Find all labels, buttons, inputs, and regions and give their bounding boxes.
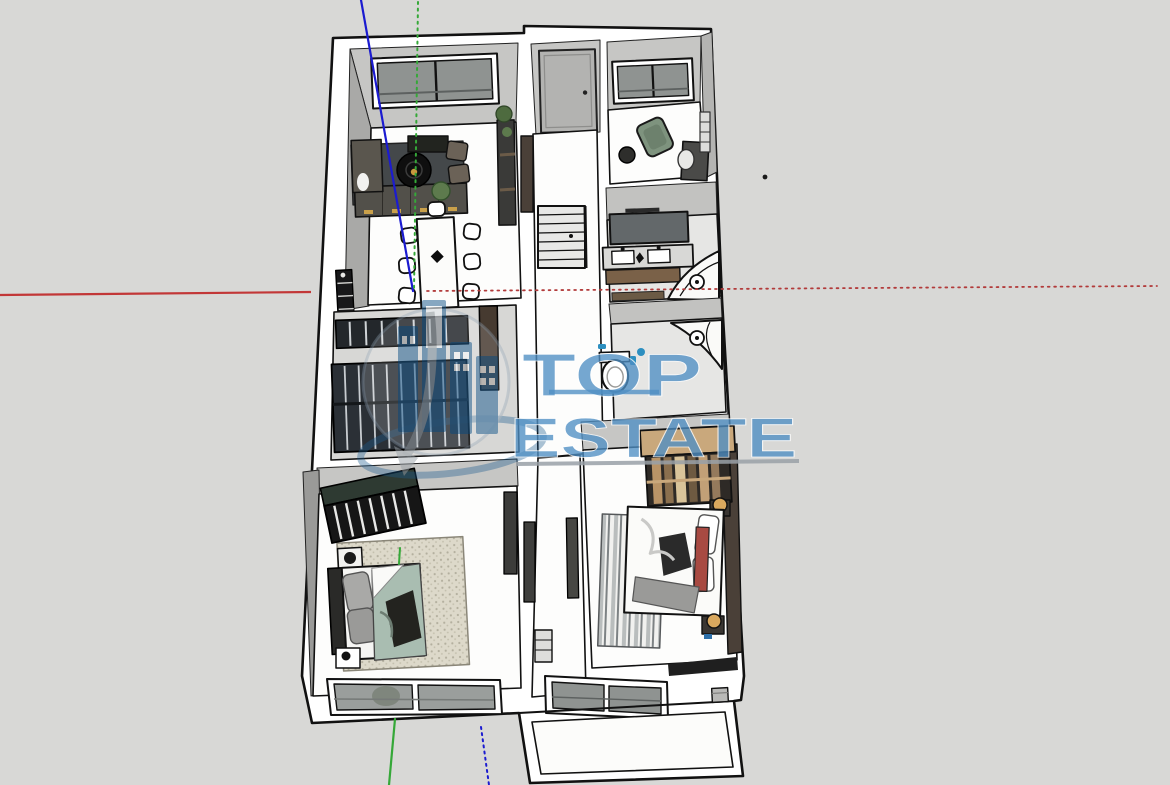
living-window [371, 53, 499, 108]
bathroom-vanity-room [603, 182, 721, 302]
ac-unit [712, 688, 729, 703]
double-bed [624, 507, 724, 616]
dining-table [417, 217, 459, 309]
bedroom2-window [545, 676, 668, 719]
desk-chair [677, 149, 694, 170]
hallway-door [524, 522, 535, 602]
round-stool [619, 147, 635, 163]
vanity-drawers [606, 268, 680, 285]
hallway-steps [535, 630, 552, 662]
armchair [446, 141, 468, 162]
sofa-back-cushions [408, 136, 448, 152]
sink [648, 249, 670, 263]
bath-mat [612, 291, 664, 301]
vanity-counter [603, 245, 694, 270]
office-room [607, 32, 717, 184]
plant [496, 106, 512, 122]
tv-console [496, 106, 516, 225]
hallway-door [566, 518, 578, 598]
armchair [448, 164, 470, 184]
wall-ladder-rack [700, 112, 710, 152]
terrace-floor [532, 712, 733, 774]
canvas-speck [763, 175, 768, 180]
green-axis-gap-segment [399, 548, 400, 564]
throw-blanket [357, 173, 369, 191]
table-lamp [707, 614, 721, 628]
red-runner [694, 527, 709, 591]
watermark-line1: TOP [522, 342, 702, 409]
3d-viewport[interactable]: TOP ESTATE [0, 0, 1170, 785]
living-room [336, 43, 521, 320]
sink [612, 251, 634, 265]
bedroom1-door [504, 492, 517, 574]
front-door [539, 49, 597, 132]
sliding-door [521, 136, 533, 212]
bedroom-left [303, 459, 521, 696]
storage-box [336, 648, 360, 668]
plant [502, 127, 512, 137]
plant-reflection [372, 686, 400, 706]
pillow [347, 607, 377, 644]
stair-railing [585, 206, 586, 268]
bedroom1-window [327, 679, 502, 715]
plant [432, 182, 450, 200]
office-window [612, 58, 694, 103]
staircase [538, 206, 586, 268]
